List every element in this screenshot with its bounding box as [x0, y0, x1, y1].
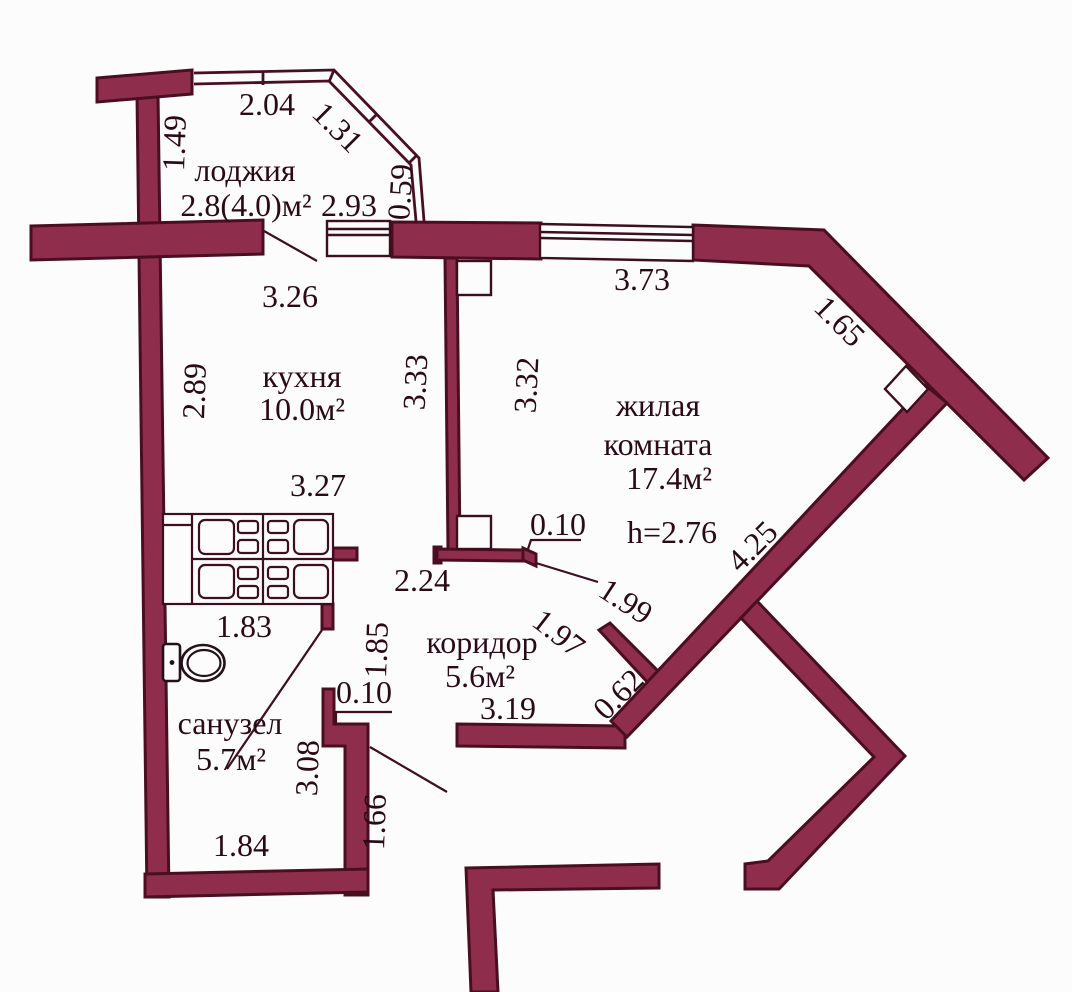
svg-text:h=2.76: h=2.76	[627, 514, 717, 550]
svg-text:3.27: 3.27	[290, 467, 346, 503]
svg-text:санузел: санузел	[178, 705, 283, 741]
svg-text:коридор: коридор	[426, 624, 537, 660]
svg-text:2.8(4.0)м²: 2.8(4.0)м²	[180, 187, 311, 223]
svg-text:1.49: 1.49	[155, 114, 193, 171]
svg-text:2.04: 2.04	[239, 86, 295, 122]
svg-text:5.7м²: 5.7м²	[196, 741, 266, 777]
svg-text:0.10: 0.10	[530, 506, 586, 542]
svg-text:2.89: 2.89	[175, 362, 213, 419]
svg-text:3.08: 3.08	[288, 739, 326, 796]
svg-text:кухня: кухня	[263, 358, 342, 394]
svg-text:1.85: 1.85	[357, 621, 395, 678]
svg-text:17.4м²: 17.4м²	[626, 460, 712, 496]
svg-text:2.24: 2.24	[394, 562, 450, 598]
svg-text:лоджия: лоджия	[194, 152, 296, 188]
svg-text:1.84: 1.84	[213, 827, 269, 863]
svg-text:1.31: 1.31	[305, 94, 370, 159]
svg-text:1.83: 1.83	[216, 608, 272, 644]
svg-text:0.59: 0.59	[380, 163, 420, 221]
svg-text:2.93: 2.93	[321, 187, 377, 223]
svg-text:3.32: 3.32	[507, 356, 546, 414]
svg-text:5.6м²: 5.6м²	[445, 658, 515, 694]
svg-text:3.26: 3.26	[262, 278, 318, 314]
svg-text:жилая: жилая	[615, 387, 700, 423]
svg-text:10.0м²: 10.0м²	[259, 391, 345, 427]
svg-text:3.73: 3.73	[614, 261, 670, 297]
svg-text:комната: комната	[604, 426, 713, 462]
svg-text:1.66: 1.66	[355, 793, 393, 850]
svg-text:3.19: 3.19	[480, 690, 536, 726]
svg-text:3.33: 3.33	[396, 353, 435, 411]
svg-text:0.10: 0.10	[336, 674, 392, 710]
svg-text:1.99: 1.99	[593, 571, 660, 632]
